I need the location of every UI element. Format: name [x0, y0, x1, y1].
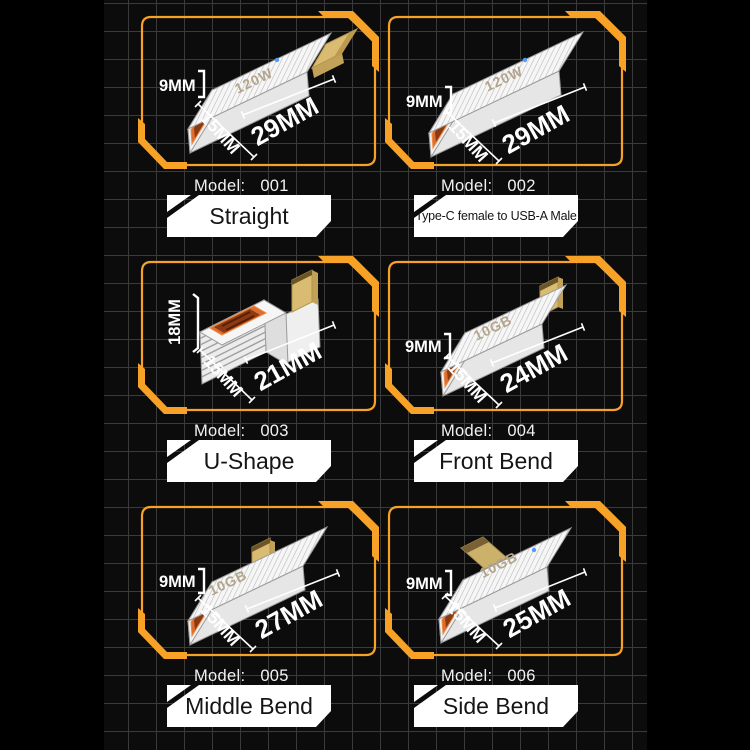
- model-row: Model: 005: [194, 667, 289, 686]
- model-label: Model:: [441, 177, 492, 196]
- dim-height-bracket-icon: [198, 569, 204, 593]
- model-label: Model:: [194, 422, 245, 441]
- model-number: 004: [507, 422, 535, 441]
- product-name-box: Front Bend: [414, 440, 578, 482]
- adapter-photo-plain: 120W 9MM 15MM 29MM: [389, 17, 622, 165]
- product-name: U-Shape: [204, 448, 295, 475]
- model-number: 001: [260, 177, 288, 196]
- model-number: 005: [260, 667, 288, 686]
- model-row: Model: 004: [441, 422, 536, 441]
- adapter-photo-ushape: 18MM 15MM 21MM: [142, 262, 375, 410]
- model-row: Model: 006: [441, 667, 536, 686]
- product-panel-004: 10GB 9MM 15MM 24MM Model: 004 Front Bend: [389, 262, 622, 494]
- dim-height-bracket-icon: [198, 71, 204, 97]
- led-dot-icon: [523, 58, 527, 62]
- dim-height-label: 9MM: [406, 93, 443, 111]
- model-row: Model: 002: [441, 177, 536, 196]
- product-panel-003: 18MM 15MM 21MM Model: 003 U-Shape: [142, 262, 375, 494]
- led-dot-icon: [275, 58, 279, 62]
- product-name-box: Straight: [167, 195, 331, 237]
- product-panel-005: 10GB 9MM 15MM 27MM Model: 005 Middle Ben…: [142, 507, 375, 739]
- product-panel-001: 120W 9MM 15MM 29MM Model: 001 Straight: [142, 17, 375, 249]
- product-panel-002: 120W 9MM 15MM 29MM Model: 002 Type-C fem…: [389, 17, 622, 249]
- product-name: Side Bend: [443, 693, 549, 720]
- adapter-photo-middle-bend: 10GB 9MM 15MM 27MM: [142, 507, 375, 655]
- product-name: Type-C female to USB-A Male: [415, 209, 576, 223]
- model-label: Model:: [194, 667, 245, 686]
- dim-height-label: 9MM: [405, 338, 442, 356]
- product-name-box: Middle Bend: [167, 685, 331, 727]
- product-name: Front Bend: [439, 448, 553, 475]
- dim-height-bracket-icon: [445, 571, 451, 595]
- product-name: Straight: [209, 203, 288, 230]
- model-number: 003: [260, 422, 288, 441]
- content-strip: 120W 9MM 15MM 29MM Model: 001 Straight: [104, 0, 647, 750]
- model-label: Model:: [441, 667, 492, 686]
- dim-height-bracket-icon: [193, 294, 198, 352]
- led-dot-icon: [532, 548, 536, 552]
- model-label: Model:: [194, 177, 245, 196]
- model-number: 006: [507, 667, 535, 686]
- model-row: Model: 001: [194, 177, 289, 196]
- product-name-box: Side Bend: [414, 685, 578, 727]
- product-name-box: U-Shape: [167, 440, 331, 482]
- adapter-photo-side-bend: 10GB 9MM 15MM 25MM: [389, 507, 622, 655]
- dim-height-label: 9MM: [159, 573, 196, 591]
- product-name: Middle Bend: [185, 693, 313, 720]
- product-name-box: Type-C female to USB-A Male: [414, 195, 578, 237]
- model-number: 002: [507, 177, 535, 196]
- adapter-photo-front-bend: 10GB 9MM 15MM 24MM: [389, 262, 622, 410]
- adapter-photo-straight: 120W 9MM 15MM 29MM: [142, 17, 375, 165]
- product-infographic: { "panels": [ {"model_label":"Model:","m…: [0, 0, 750, 750]
- product-panel-006: 10GB 9MM 15MM 25MM Model: 006 Side Bend: [389, 507, 622, 739]
- dim-height-label: 9MM: [159, 77, 196, 95]
- model-row: Model: 003: [194, 422, 289, 441]
- dim-height-label: 18MM: [166, 299, 184, 345]
- dim-height-label: 9MM: [406, 575, 443, 593]
- model-label: Model:: [441, 422, 492, 441]
